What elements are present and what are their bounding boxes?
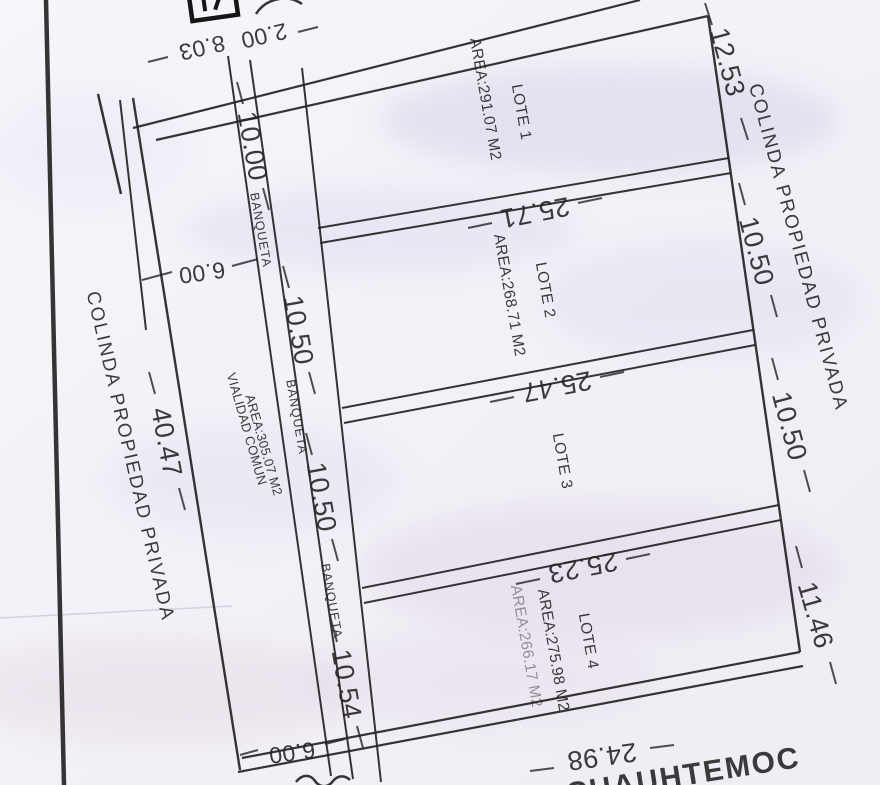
plat-drawing: 8.03 2.00 12.53 10.50 10.50 11.46 40.47 …: [0, 0, 880, 785]
scanned-survey-plat-page: 8.03 2.00 12.53 10.50 10.50 11.46 40.47 …: [0, 0, 880, 785]
stamp-glyph: [203, 0, 205, 11]
